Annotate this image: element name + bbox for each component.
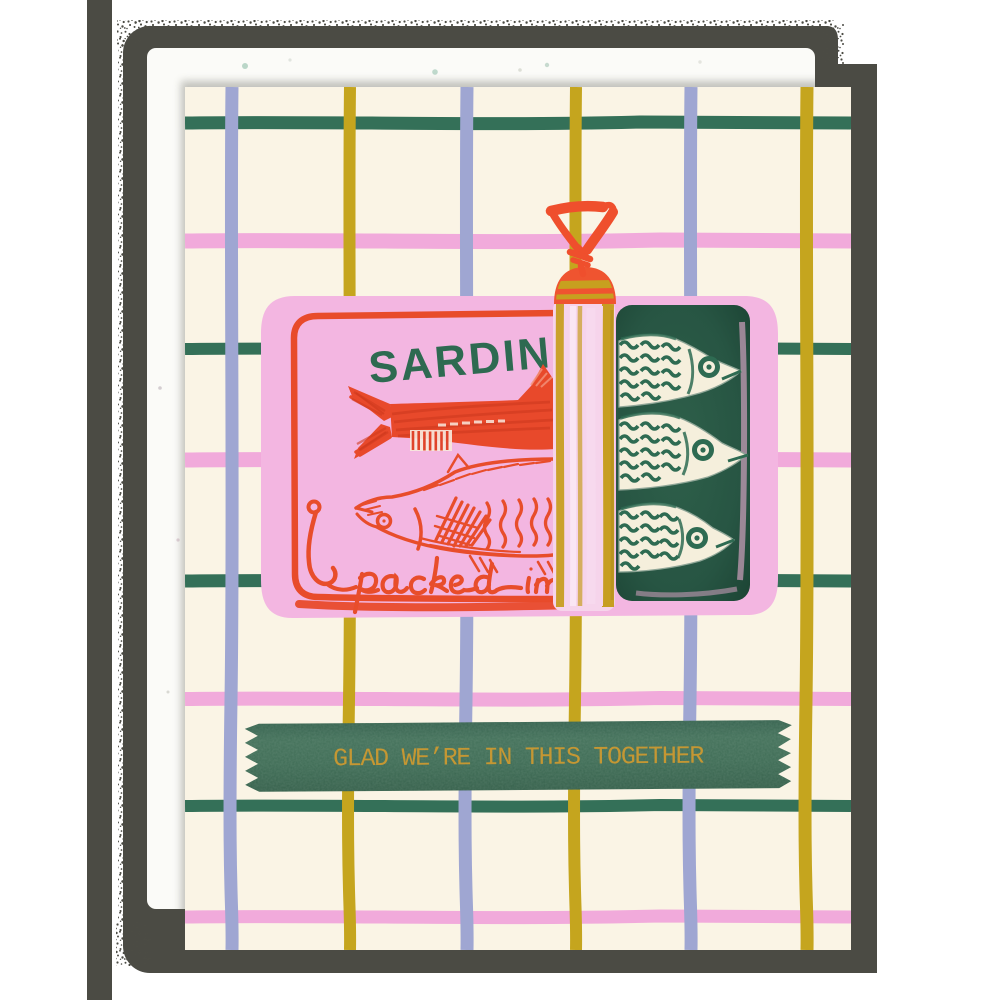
svg-text:GLAD WE’RE IN THIS TOGETHER: GLAD WE’RE IN THIS TOGETHER: [333, 742, 704, 774]
